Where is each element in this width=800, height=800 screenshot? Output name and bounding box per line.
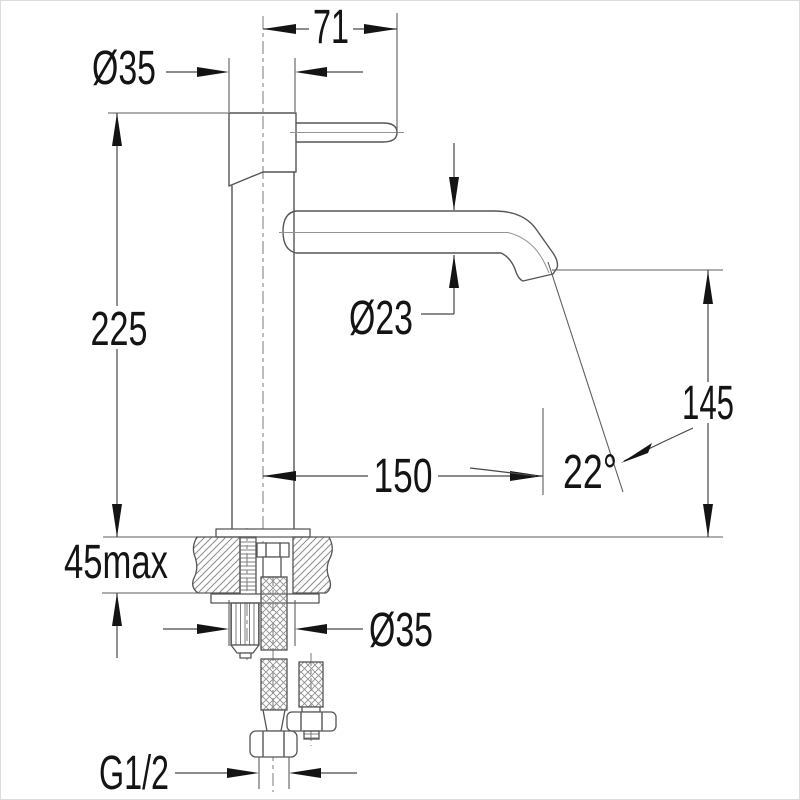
spout [283, 211, 558, 281]
deck-slab-right [293, 537, 332, 593]
dim-thread-size-label: G1/2 [99, 747, 169, 800]
dim-spout-angle-label: 22° [563, 446, 617, 499]
arrowhead-right [289, 768, 321, 778]
arrowhead-right [364, 24, 397, 34]
dim-mounting-hole-label: Ø35 [369, 604, 433, 657]
dim-overall-height: 225 [88, 113, 229, 537]
angle-arc-left [470, 468, 536, 476]
arrowhead-right [295, 67, 327, 77]
deck-cross-section [103, 537, 723, 593]
dim-overall-height-label: 225 [91, 303, 148, 356]
arrowhead-bottom [112, 504, 122, 537]
arrowhead-right [295, 624, 327, 634]
dim-outlet-height-label: 145 [682, 377, 734, 430]
arrowhead-left [227, 768, 259, 778]
hose2-hex-nut [287, 712, 336, 731]
hose-fitting-hex [257, 543, 289, 557]
deck-slab-left [193, 537, 240, 593]
dim-deck-thickness: 45max [60, 536, 211, 658]
faucet-technical-drawing: 71 Ø35 225 Ø23 150 [0, 0, 800, 800]
technical-drawing-page: 71 Ø35 225 Ø23 150 [0, 0, 800, 800]
arrowhead [621, 443, 652, 463]
arrowhead-right [510, 471, 543, 481]
arrowhead-left [263, 471, 296, 481]
hose-fitting-tube [263, 557, 281, 577]
arrowhead-top [112, 113, 122, 146]
hose2-thread-stub [304, 731, 319, 739]
dim-spout-diameter-label: Ø23 [349, 292, 413, 345]
arrowhead-top [703, 271, 713, 304]
dim-mounting-hole: Ø35 [163, 600, 433, 657]
arrowhead-left [197, 67, 229, 77]
arrowhead-up [112, 593, 122, 626]
mounting-nut-taper [231, 645, 259, 653]
hose1-collar [263, 710, 285, 731]
hose1-hex-nut [250, 731, 297, 757]
supply-hoses [250, 577, 336, 757]
arrowhead-left [263, 24, 296, 34]
hose2-collar [302, 707, 320, 712]
dim-spout-angle: 22° [470, 262, 693, 499]
base-flange [216, 529, 310, 537]
hose1-braid-lower [261, 659, 287, 710]
hose1-braid-upper [261, 577, 287, 650]
dim-handle-length-label: 71 [313, 1, 349, 54]
dim-spout-reach-label: 150 [374, 450, 433, 503]
dim-spout-reach: 150 [263, 408, 543, 503]
arrowhead-bottom [703, 504, 713, 537]
stud-tip [240, 653, 251, 658]
mounting-nut [231, 603, 259, 645]
dim-body-diameter-label: Ø35 [92, 42, 156, 95]
hose2-braid [299, 662, 323, 707]
threaded-stud [240, 537, 256, 600]
arrowhead-top [449, 177, 459, 210]
dim-spout-diameter: Ø23 [349, 143, 459, 345]
dim-thread-size: G1/2 [99, 747, 357, 800]
dim-deck-thickness-label: 45max [64, 536, 168, 589]
arrowhead-left [197, 624, 229, 634]
arrowhead-bottom [449, 255, 459, 288]
